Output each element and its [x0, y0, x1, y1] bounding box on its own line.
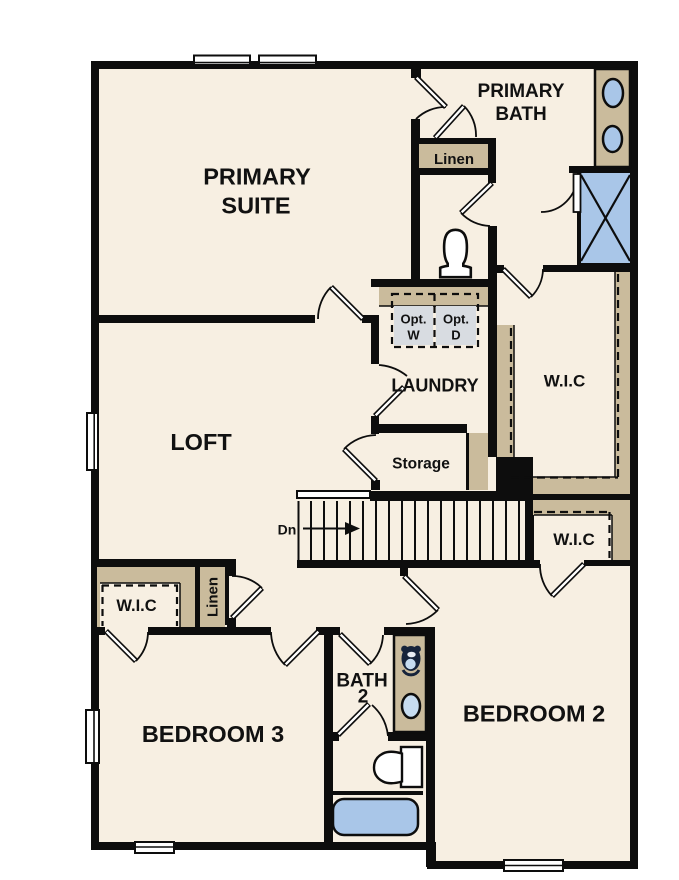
- svg-text:Opt.: Opt.: [443, 312, 469, 327]
- svg-text:SUITE: SUITE: [221, 193, 290, 219]
- svg-text:Opt.: Opt.: [401, 312, 427, 327]
- svg-text:BEDROOM 2: BEDROOM 2: [463, 701, 605, 727]
- svg-text:Linen: Linen: [205, 577, 222, 617]
- svg-text:BATH: BATH: [495, 104, 546, 125]
- svg-text:2: 2: [358, 687, 369, 708]
- svg-text:BEDROOM 3: BEDROOM 3: [142, 721, 284, 747]
- svg-text:W.I.C: W.I.C: [544, 372, 586, 391]
- svg-text:Linen: Linen: [434, 151, 474, 168]
- svg-text:W: W: [407, 328, 420, 343]
- svg-text:Dn: Dn: [278, 522, 297, 538]
- svg-text:D: D: [451, 328, 460, 343]
- svg-text:W.I.C: W.I.C: [116, 597, 156, 615]
- svg-text:LAUNDRY: LAUNDRY: [391, 376, 478, 396]
- svg-text:PRIMARY: PRIMARY: [203, 164, 311, 190]
- svg-text:W.I.C: W.I.C: [553, 530, 595, 549]
- svg-text:LOFT: LOFT: [170, 429, 232, 455]
- svg-text:Storage: Storage: [392, 456, 450, 473]
- svg-text:PRIMARY: PRIMARY: [478, 81, 565, 102]
